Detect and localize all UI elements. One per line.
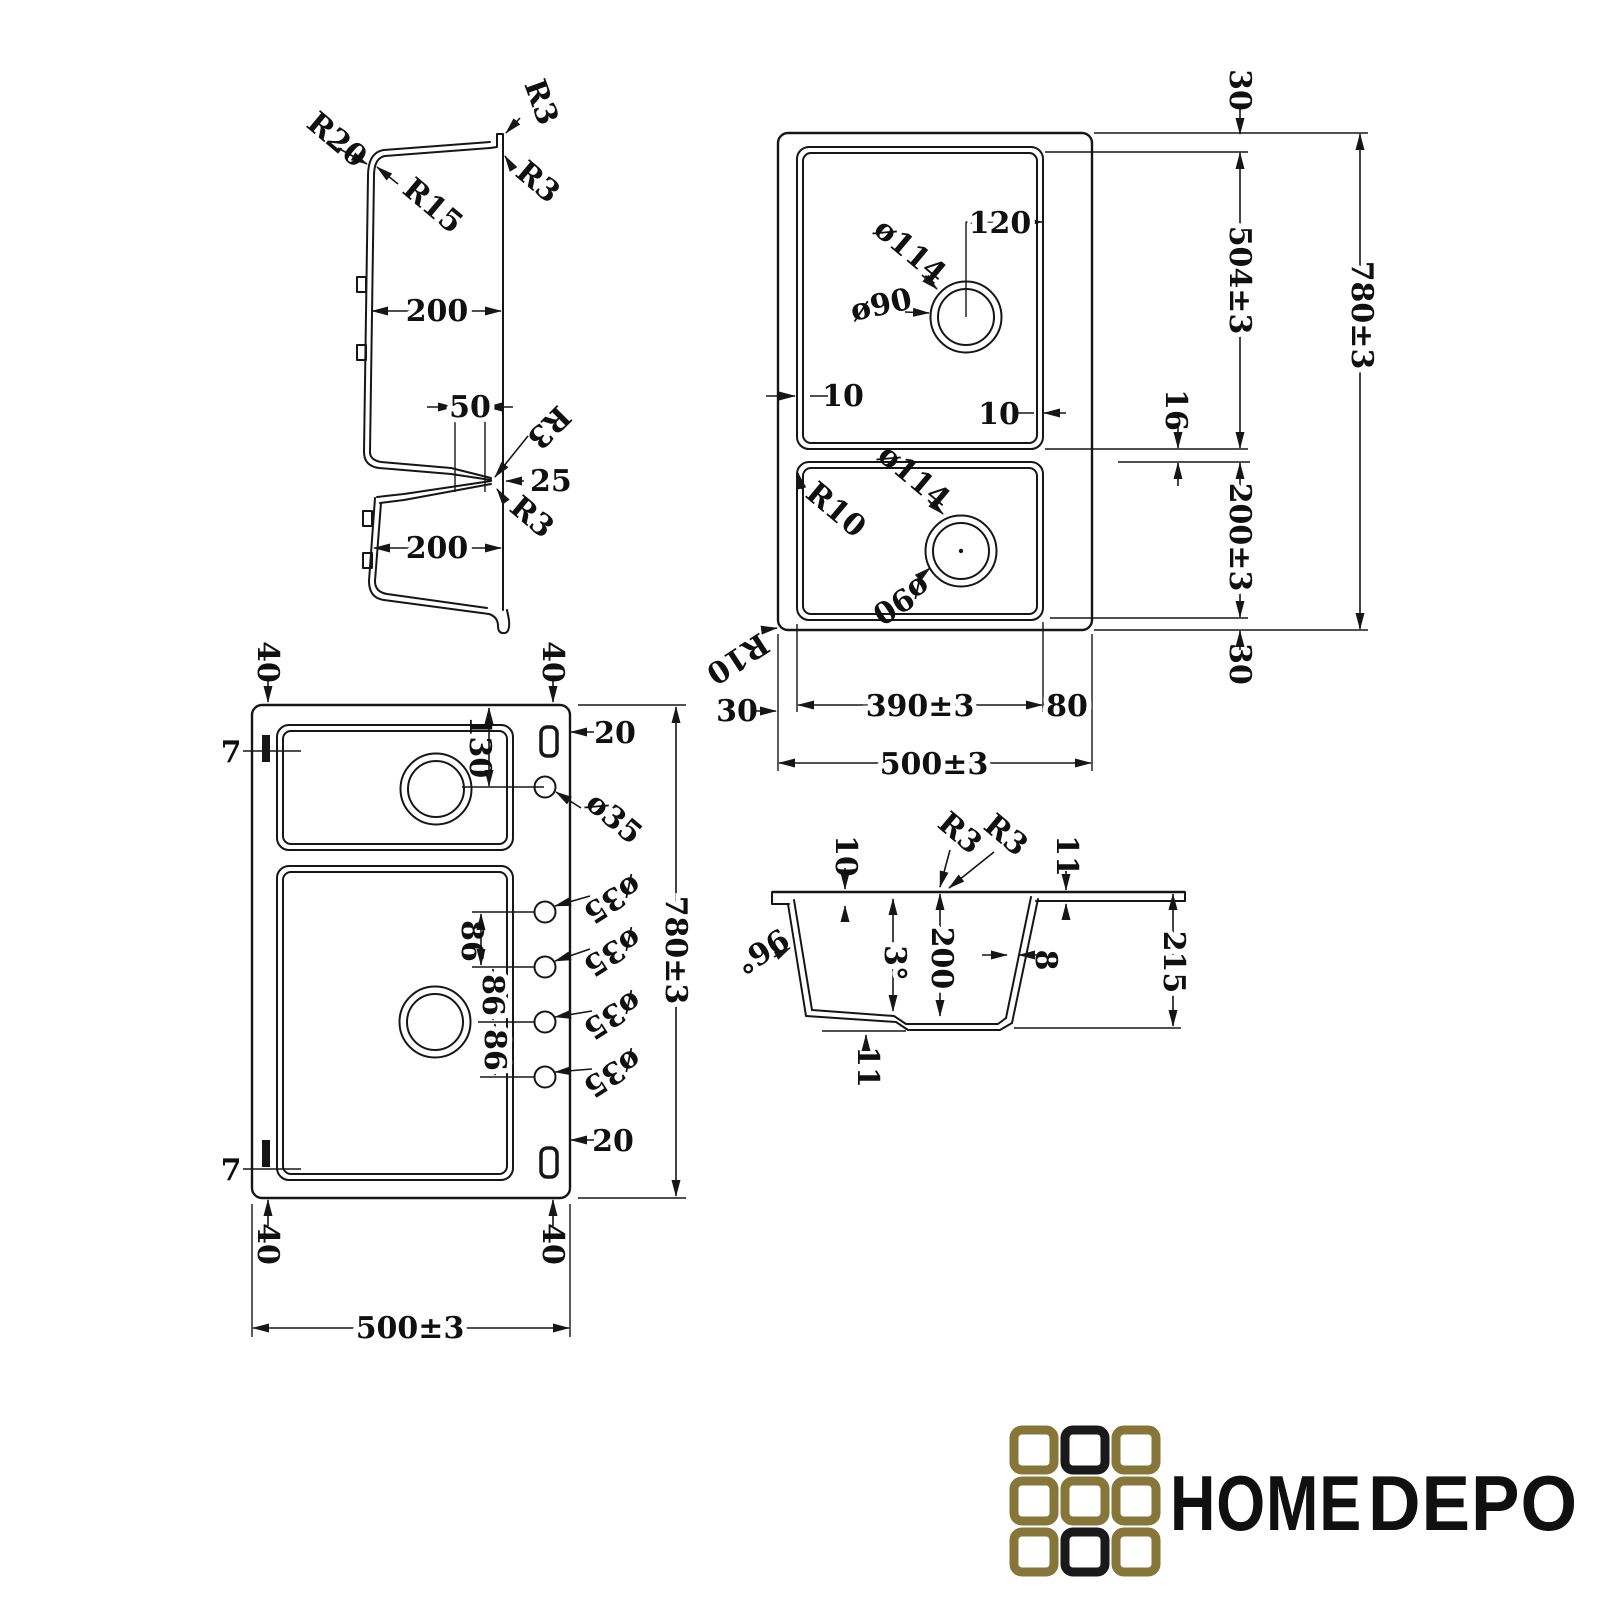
mount-slot bbox=[541, 727, 557, 756]
sink-outline bbox=[252, 705, 570, 1198]
dim-label-dia90-bot: ø90 bbox=[866, 568, 937, 631]
logo-square-black bbox=[1065, 1430, 1105, 1470]
dim-label-r3-right: R3 bbox=[509, 154, 567, 210]
dim-label-dia35-3: ø35 bbox=[577, 920, 648, 983]
dim-label-r10-outer: R10 bbox=[700, 625, 775, 691]
technical-drawing-page: R20 R3 R15 R3 200 50 R3 25 R3 200 bbox=[0, 0, 1600, 1600]
dim-label-11-top: 11 bbox=[1049, 835, 1084, 877]
logo-square-gold bbox=[1014, 1481, 1054, 1521]
dim-label-500-plan-bottom: 500±3 bbox=[356, 1311, 465, 1346]
dim-label-10: 10 bbox=[828, 835, 863, 877]
dim-label-30-top: 30 bbox=[1222, 69, 1257, 111]
logo-square-black bbox=[1065, 1532, 1105, 1572]
dim-label-r3-b: R3 bbox=[977, 807, 1035, 863]
dim-label-r20: R20 bbox=[300, 105, 374, 175]
dim-label-10-right: 10 bbox=[978, 397, 1020, 432]
dim-label-r3-top: R3 bbox=[516, 75, 565, 130]
dim-label-7-top: 7 bbox=[221, 735, 242, 770]
logo-grid bbox=[1014, 1430, 1156, 1572]
dim-label-20-top: 20 bbox=[594, 716, 636, 751]
dim-label-40-br: 40 bbox=[535, 1223, 570, 1265]
dim-label-120: 120 bbox=[969, 206, 1032, 241]
logo-square-gold bbox=[1116, 1430, 1156, 1470]
brand-logo: HOME DEPO bbox=[1014, 1430, 1578, 1572]
dim-label-dia35-5: ø35 bbox=[577, 1041, 648, 1104]
dim-label-11-bot: 11 bbox=[850, 1046, 885, 1088]
dim-label-200-depth: 200 bbox=[924, 927, 959, 990]
dim-label-dia35-4: ø35 bbox=[577, 983, 648, 1046]
dim-label-40-tl: 40 bbox=[250, 641, 285, 683]
drain-hole-2 bbox=[400, 987, 471, 1058]
dim-label-3deg: 3° bbox=[877, 945, 912, 981]
dim-label-25: 25 bbox=[530, 464, 572, 499]
logo-square-gold bbox=[1014, 1532, 1054, 1572]
dim-label-10-left: 10 bbox=[822, 379, 864, 414]
dim-label-50: 50 bbox=[449, 390, 491, 425]
bottom-plan-view: 40 40 7 20 130 ø35 ø35 ø35 ø35 ø35 86 86… bbox=[221, 641, 693, 1346]
dim-label-500-plan-top: 500±3 bbox=[880, 747, 989, 782]
logo-square-gold bbox=[1116, 1481, 1156, 1521]
dim-label-86-2: 86 bbox=[475, 974, 510, 1016]
logo-square-gold bbox=[1014, 1430, 1054, 1470]
dim-label-80: 80 bbox=[1046, 689, 1088, 724]
logo-home: HOME bbox=[1170, 1459, 1362, 1547]
dim-label-40-tr: 40 bbox=[535, 641, 570, 683]
dim-label-86-3: 86 bbox=[477, 1029, 512, 1071]
dim-label-30-botright: 30 bbox=[1222, 643, 1257, 685]
dim-label-7-bot: 7 bbox=[221, 1153, 242, 1188]
dim-label-40-bl: 40 bbox=[250, 1223, 285, 1265]
dim-label-dia35-2: ø35 bbox=[577, 867, 648, 930]
dim-label-780-plan-bottom: 780±3 bbox=[658, 896, 693, 1005]
dim-label-8: 8 bbox=[1028, 950, 1063, 971]
dim-label-504: 504±3 bbox=[1222, 226, 1257, 335]
dim-label-96deg: 96° bbox=[728, 920, 795, 980]
logo-square-gold bbox=[1116, 1532, 1156, 1572]
mount-slot bbox=[541, 1148, 557, 1177]
faucet-hole bbox=[535, 902, 556, 923]
dim-label-130: 130 bbox=[462, 716, 497, 779]
side-section-view: R20 R3 R15 R3 200 50 R3 25 R3 200 bbox=[300, 75, 577, 633]
faucet-hole bbox=[535, 1067, 556, 1088]
clip-mark bbox=[262, 1140, 270, 1167]
logo-depo: DEPO bbox=[1368, 1459, 1578, 1547]
dim-label-dia35-1: ø35 bbox=[579, 785, 649, 852]
dim-label-r10-inner: R10 bbox=[799, 475, 873, 545]
logo-square-gold bbox=[1065, 1481, 1105, 1521]
drain-hole-1 bbox=[401, 754, 472, 825]
faucet-hole bbox=[535, 957, 556, 978]
dim-label-r3-mid: R3 bbox=[520, 398, 577, 455]
dim-label-390: 390±3 bbox=[866, 689, 975, 724]
dim-label-200-bot: 200 bbox=[406, 531, 469, 566]
clip-slot bbox=[363, 511, 372, 526]
clip-mark bbox=[262, 735, 270, 762]
faucet-hole bbox=[535, 1012, 556, 1033]
end-section-view: 10 R3 R3 11 96° 3° 200 8 215 11 bbox=[728, 805, 1191, 1088]
clip-slot bbox=[357, 277, 366, 292]
dim-label-200-top: 200 bbox=[406, 294, 469, 329]
dim-label-dia90-top: ø90 bbox=[847, 282, 915, 329]
dim-label-16: 16 bbox=[1158, 389, 1193, 431]
dim-label-86-1: 86 bbox=[454, 920, 489, 962]
dim-label-dia114-top: ø114 bbox=[867, 211, 953, 291]
dim-label-215: 215 bbox=[1156, 931, 1191, 994]
dim-label-20-bot: 20 bbox=[592, 1124, 634, 1159]
dim-label-200pm: 200±3 bbox=[1222, 483, 1257, 592]
dim-label-r15: R15 bbox=[396, 171, 470, 241]
dim-label-30-botleft: 30 bbox=[716, 694, 758, 729]
top-plan-view: 120 ø114 ø90 ø114 ø90 R10 R10 10 10 30 5… bbox=[700, 69, 1379, 782]
dim-label-780-plan-top: 780±3 bbox=[1344, 261, 1379, 370]
sink-technical-drawing: R20 R3 R15 R3 200 50 R3 25 R3 200 bbox=[0, 0, 1600, 1600]
bowl2-outline bbox=[277, 866, 513, 1180]
